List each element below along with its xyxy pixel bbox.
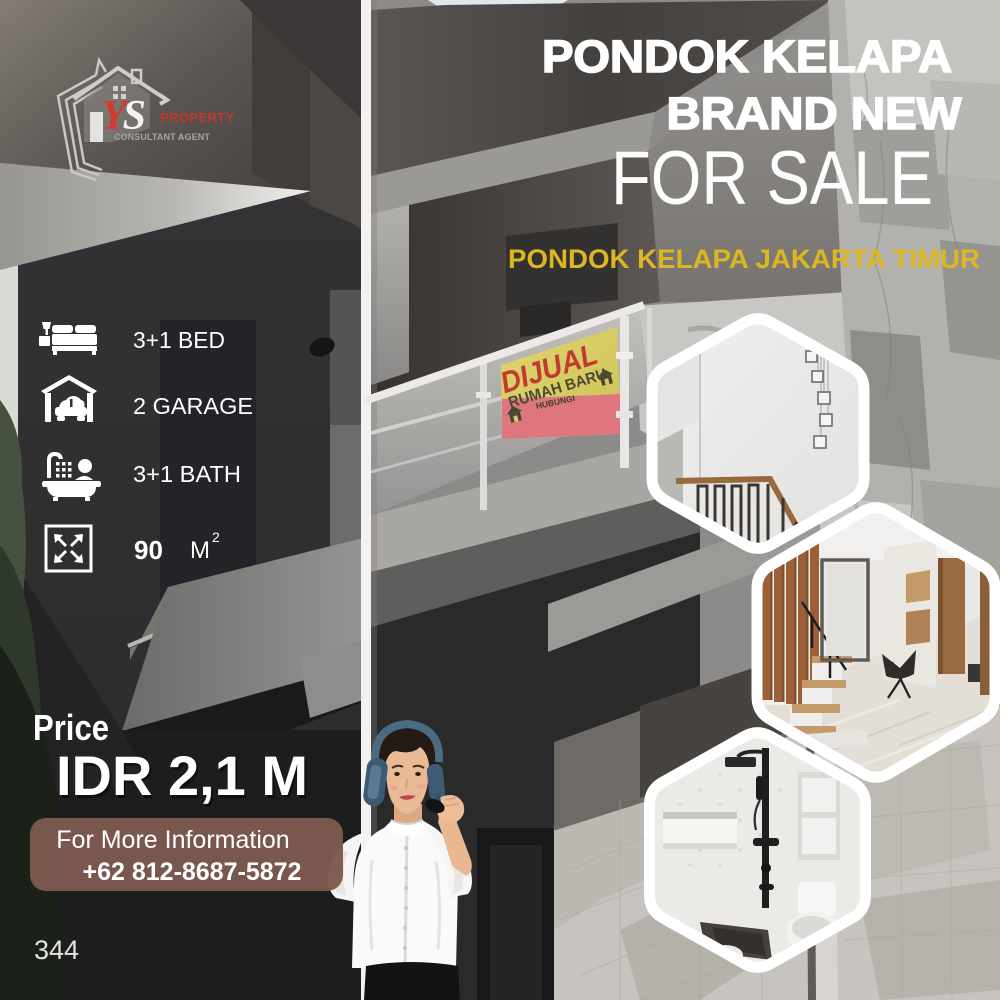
svg-text:3+1 BATH: 3+1 BATH <box>133 461 241 487</box>
svg-text:M: M <box>190 537 210 564</box>
svg-text:For More Information: For More Information <box>56 826 289 854</box>
svg-text:PONDOK KELAPA JAKARTA TIMUR: PONDOK KELAPA JAKARTA TIMUR <box>508 244 980 274</box>
svg-text:PROPERTY: PROPERTY <box>160 110 235 125</box>
svg-text:2: 2 <box>212 529 220 545</box>
svg-text:IDR 2,1 M: IDR 2,1 M <box>56 744 308 807</box>
svg-text:90: 90 <box>134 535 163 565</box>
svg-text:BRAND NEW: BRAND NEW <box>667 88 963 139</box>
svg-text:FOR SALE: FOR SALE <box>611 136 933 221</box>
svg-text:CONSULTANT AGENT: CONSULTANT AGENT <box>114 132 210 142</box>
svg-text:344: 344 <box>34 935 79 965</box>
svg-text:3+1 BED: 3+1 BED <box>133 327 225 353</box>
svg-text:Price: Price <box>33 707 109 748</box>
svg-text:PONDOK KELAPA: PONDOK KELAPA <box>542 31 952 82</box>
svg-text:2 GARAGE: 2 GARAGE <box>133 393 253 419</box>
svg-text:+62 812-8687-5872: +62 812-8687-5872 <box>83 858 302 886</box>
